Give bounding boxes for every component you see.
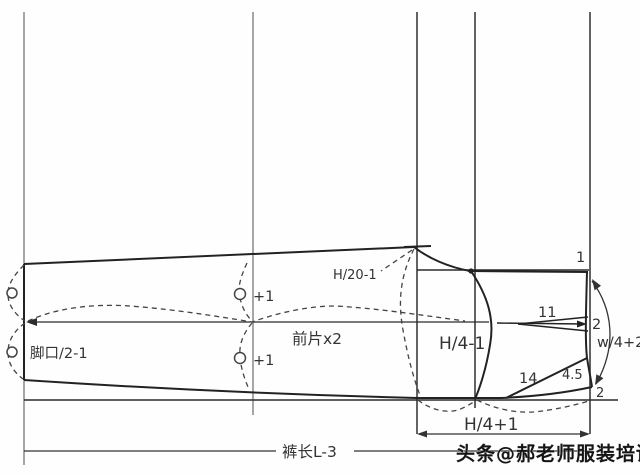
waist-arc-arrow-top	[592, 279, 601, 290]
rise-arrow-left	[417, 431, 427, 438]
inseam-line	[24, 247, 414, 264]
dart-intake-label: 2	[592, 317, 601, 333]
pocket-opening-label: 14	[519, 371, 537, 387]
waist-width-label: w/4+2	[597, 335, 640, 351]
crotch-width-pointer-dashed	[381, 250, 412, 271]
center-front-line	[468, 271, 588, 272]
knee-ease-upper-label: +1	[253, 289, 274, 305]
rise-depth-label: H/4+1	[464, 415, 518, 435]
side-seam-raise-label: 2	[596, 386, 604, 401]
pattern-diagram: 脚口/2-1 +1 +1 前片x2 H/20-1 H/4-1 H/4+1 裤长L…	[0, 0, 640, 474]
watermark: 头条@郝老师服装培训	[456, 442, 640, 465]
knee-match-circle-lower	[235, 353, 246, 364]
pattern-canvas: 脚口/2-1 +1 +1 前片x2 H/20-1 H/4-1 H/4+1 裤长L…	[0, 0, 640, 474]
original-crotch-dashed	[400, 249, 421, 398]
hem-width-label: 脚口/2-1	[30, 345, 88, 362]
crotch-junction-dot	[468, 268, 473, 273]
rise-arrow-right	[580, 431, 590, 438]
crotch-width-label: H/20-1	[333, 268, 377, 283]
front-crotch-curve	[414, 247, 470, 271]
pocket-top-width-label: 4.5	[562, 368, 583, 383]
trouser-length-label: 裤长L-3	[282, 443, 337, 461]
front-waist-drop-label: 1	[576, 250, 585, 266]
crotch-point-tab	[404, 246, 431, 247]
hem-match-circle-lower	[7, 347, 17, 357]
hem-match-circle-upper	[7, 288, 17, 298]
knee-ease-lower-label: +1	[253, 353, 274, 369]
dart-dimension-line	[497, 323, 584, 324]
hip-width-label: H/4-1	[439, 334, 485, 354]
seam-scallop-left-dashed	[418, 400, 477, 411]
dart-length-label: 11	[538, 305, 556, 321]
side-seam	[24, 380, 592, 398]
knee-match-circle-upper	[235, 289, 246, 300]
piece-label: 前片x2	[292, 330, 342, 348]
seam-scallop-right-dashed	[477, 400, 589, 412]
waist-arc-arrow-bottom	[595, 374, 603, 385]
crease-guide-wave-dashed	[28, 305, 465, 322]
